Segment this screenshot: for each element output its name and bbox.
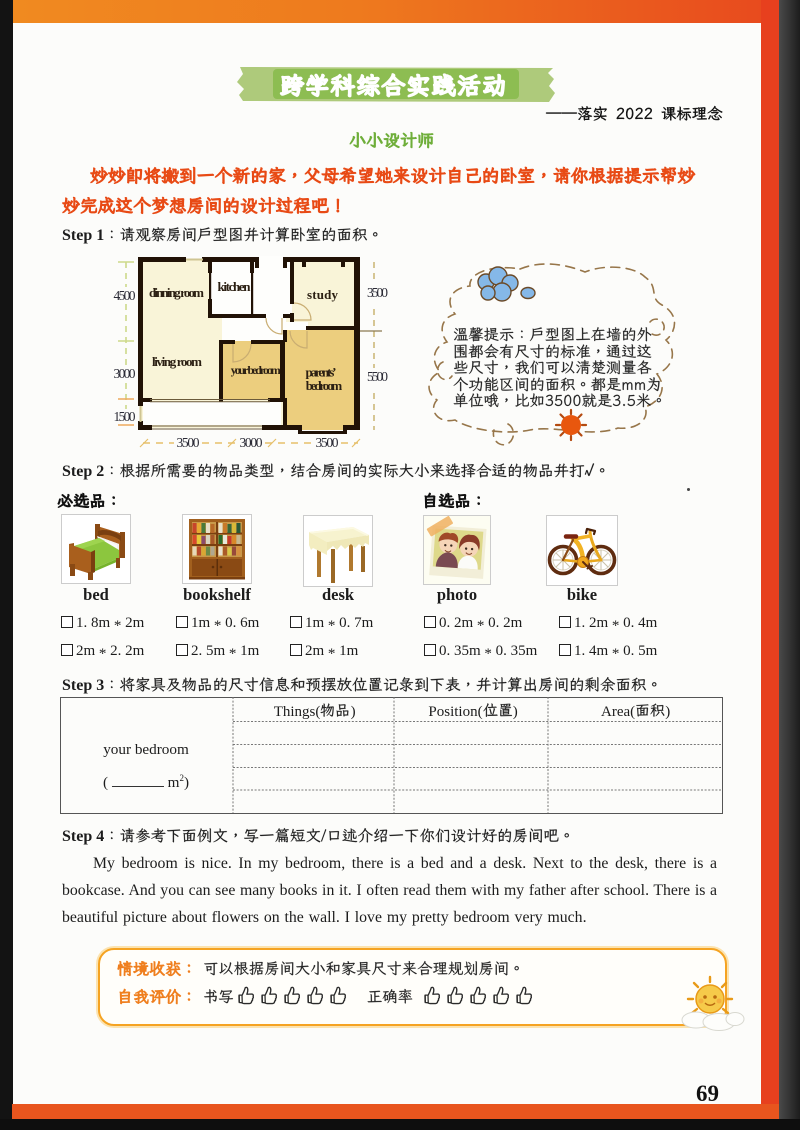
svg-text:3500: 3500 [177, 435, 200, 450]
svg-text:bedroom: bedroom [306, 378, 343, 393]
svg-text:4500: 4500 [114, 288, 136, 303]
svg-text:dinning room: dinning room [149, 285, 204, 300]
svg-text:3500: 3500 [367, 285, 388, 300]
svg-text:your bedroom: your bedroom [231, 363, 281, 377]
svg-text:1500: 1500 [114, 409, 136, 424]
svg-text:study: study [307, 287, 339, 302]
svg-text:5500: 5500 [367, 369, 388, 384]
svg-text:kitchen: kitchen [218, 279, 252, 294]
svg-text:3000: 3000 [240, 435, 263, 450]
svg-text:living room: living room [152, 354, 202, 369]
svg-text:3000: 3000 [114, 366, 136, 381]
svg-text:3500: 3500 [316, 435, 339, 450]
